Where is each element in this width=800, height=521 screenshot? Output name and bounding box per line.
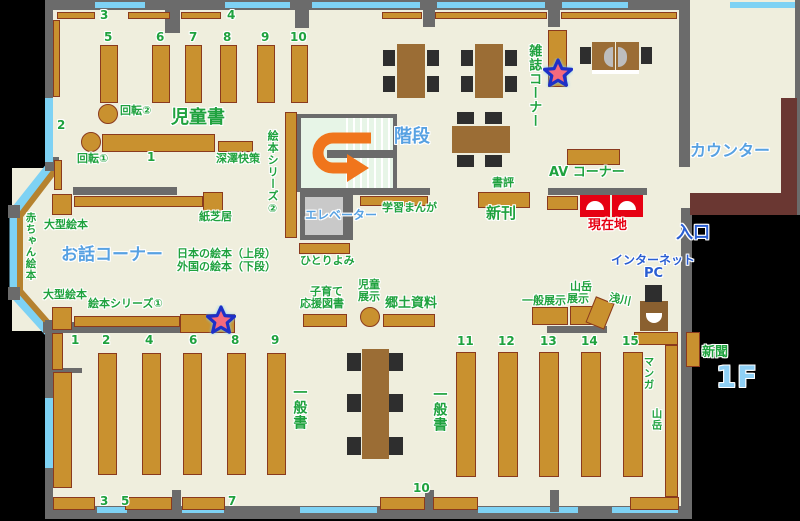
chair — [485, 155, 502, 167]
shelf-9-general — [267, 353, 286, 475]
chair — [389, 353, 403, 371]
pc-monitor — [645, 285, 662, 302]
chair — [457, 155, 474, 167]
chair — [383, 76, 395, 92]
pillar — [548, 0, 560, 27]
wall-shelf — [435, 12, 547, 19]
newspaper-rack — [686, 332, 700, 367]
shelf-number: 6 — [156, 31, 164, 44]
chair — [485, 112, 502, 124]
shelf-number: 10 — [290, 31, 307, 44]
pillar — [295, 0, 309, 28]
chair — [505, 50, 517, 66]
shelf-10 — [291, 45, 308, 103]
shelf-6 — [152, 45, 170, 103]
general-display-label: 一般展示 — [522, 295, 566, 307]
shelf-1 — [102, 134, 215, 152]
shelf-number: 2 — [102, 334, 110, 347]
chair — [461, 76, 473, 92]
shelf-8-general — [227, 353, 246, 475]
shelf-number: 1 — [147, 151, 155, 164]
shelf-number: 4 — [227, 9, 235, 22]
manga-mountain-shelf — [665, 345, 678, 497]
shelf-number: 9 — [271, 334, 279, 347]
shelf-14 — [581, 352, 601, 477]
rotating-rack-2 — [98, 104, 118, 124]
floor-badge: 1F — [716, 362, 758, 394]
counter-desk — [690, 193, 797, 215]
interior-wall — [548, 188, 647, 195]
child-display-label: 展示 — [358, 291, 380, 303]
side-table — [641, 47, 652, 64]
shelf-9 — [257, 45, 275, 103]
interior-wall — [73, 187, 177, 195]
star-marker-icon — [543, 58, 573, 88]
shelf-15 — [623, 352, 643, 477]
shelf-3-top — [128, 12, 170, 19]
shelf-7-bottom — [182, 497, 225, 510]
top-window — [312, 2, 420, 8]
manga-shelf-top — [634, 332, 678, 345]
general-books-zone-label: 一般書 — [291, 385, 306, 447]
shelf-2 — [53, 20, 60, 97]
pillar — [423, 0, 435, 27]
shelf-4-top — [181, 12, 221, 19]
solo-reading-label: ひとりよみ — [300, 255, 355, 267]
general-display-shelf — [532, 307, 568, 325]
bottom-window — [478, 507, 578, 513]
shelf-number: 15 — [622, 335, 639, 348]
study-table — [362, 349, 389, 459]
shelf-5-bottom — [125, 497, 172, 510]
shelf-3-bottom — [53, 497, 95, 510]
fukazawa-shelf — [218, 141, 253, 152]
baby-picture-books-label: 赤ちゃん絵本 — [24, 212, 36, 304]
shelf-number: 7 — [189, 31, 197, 44]
kamishibai-shelf — [203, 192, 223, 212]
chair — [427, 50, 439, 66]
chair — [389, 394, 403, 412]
childcare-books-shelf — [303, 314, 347, 327]
large-picture-book-shelf — [52, 194, 72, 215]
mountain-display-label: 展示 — [567, 293, 589, 305]
shelf-number: 7 — [228, 495, 236, 508]
chair — [457, 112, 474, 124]
general-books-zone-label: 一般書 — [431, 387, 446, 449]
wall-shelf — [54, 160, 62, 190]
rotating-rack-1-label: 回転① — [77, 153, 108, 165]
childcare-books-label: 応援図書 — [300, 298, 344, 310]
side-table — [580, 47, 591, 64]
shelf-number: 13 — [540, 335, 557, 348]
shelf-6-general — [183, 353, 202, 475]
shelf-number: 5 — [104, 31, 112, 44]
shelf-2-general — [98, 353, 117, 475]
chair — [461, 50, 473, 66]
mountain-label: 山岳 — [650, 408, 662, 440]
chair — [383, 50, 395, 66]
shelf-5 — [100, 45, 118, 103]
top-window — [562, 2, 628, 8]
rotating-rack-2-label: 回転② — [120, 105, 151, 117]
picture-book-series-2-shelf — [285, 112, 297, 238]
shelf-12 — [498, 352, 518, 477]
elevator-label: エレベーター — [305, 209, 377, 222]
wall-shelf — [382, 12, 422, 19]
large-picture-books-label: 大型絵本 — [43, 289, 87, 301]
bottom-window — [300, 507, 377, 513]
book-review-label: 書評 — [492, 177, 514, 189]
reading-table — [397, 44, 425, 98]
shelf-number: 1 — [71, 334, 79, 347]
chair — [427, 76, 439, 92]
large-picture-book-shelf — [52, 307, 72, 330]
chair — [389, 437, 403, 455]
child-display-table — [360, 307, 380, 327]
kamishibai-label: 紙芝居 — [199, 211, 232, 223]
shelf-number: 3 — [100, 9, 108, 22]
internet-pc-label: PC — [644, 267, 663, 281]
shelf-11 — [456, 352, 476, 477]
study-manga-label: 学習まんが — [382, 202, 437, 214]
left-window-lower — [45, 398, 53, 468]
wall-shelf — [53, 372, 72, 488]
local-materials-label: 郷土資料 — [385, 297, 437, 311]
pillar — [550, 490, 559, 512]
shelf-number: 5 — [121, 495, 129, 508]
shelf-number: 8 — [231, 334, 239, 347]
shelf-3-top — [57, 12, 95, 19]
shelf-1-wall — [52, 333, 63, 370]
shelf-number: 4 — [145, 334, 153, 347]
stairs-label: 階段 — [394, 127, 430, 147]
stairs-direction-arrow-icon — [303, 126, 375, 184]
chair — [347, 353, 361, 371]
new-arrivals-label: 新刊 — [486, 205, 516, 222]
left-window-upper — [45, 98, 53, 162]
reading-table — [475, 44, 503, 98]
magazine-corner-zone-label: 雑誌コーナー — [526, 44, 540, 144]
shelf-number: 6 — [189, 334, 197, 347]
top-window — [437, 2, 545, 8]
chair — [347, 394, 361, 412]
shelf-10-bottom — [433, 497, 478, 510]
shelf-7 — [185, 45, 202, 103]
solo-reading-shelf — [299, 243, 350, 254]
manga-label: マンガ — [642, 356, 654, 401]
current-location-label: 現在地 — [588, 219, 627, 233]
shelf-4-general — [142, 353, 161, 475]
shelf-number: 11 — [457, 335, 474, 348]
library-floor-map: 3 4 5 6 7 8 9 10 2 1 回転② 回転① 児童書 深澤快策 絵本… — [0, 0, 800, 521]
shelf-number: 9 — [261, 31, 269, 44]
entrance-label: 入口 — [676, 224, 710, 243]
shelf-number: 8 — [223, 31, 231, 44]
wall-shelf — [561, 12, 677, 19]
shelf-8 — [220, 45, 237, 103]
av-corner-shelf — [567, 149, 620, 165]
shelf-number: 14 — [581, 335, 598, 348]
picture-book-series-2-label: 絵本シリーズ② — [266, 130, 278, 235]
large-picture-books-label: 大型絵本 — [44, 219, 88, 231]
newspaper-label: 新聞 — [702, 346, 728, 360]
local-materials-shelf — [383, 314, 435, 327]
fukazawa-label: 深澤快策 — [216, 153, 260, 165]
shelf-number: 12 — [498, 335, 515, 348]
picture-book-series-1-shelf — [74, 316, 180, 327]
kids-books-zone-label: 児童書 — [171, 108, 225, 128]
picture-book-wall-shelf — [74, 196, 203, 207]
shelf-number: 10 — [413, 482, 430, 495]
sofa-base — [592, 70, 639, 74]
shelf-number: 2 — [57, 119, 65, 132]
picture-book-series-1-label: 絵本シリーズ① — [88, 298, 163, 310]
shelf-10-bottom — [380, 497, 425, 510]
star-marker-icon — [206, 305, 236, 335]
right-wall-upper — [679, 0, 690, 167]
counter-label: カウンター — [690, 142, 770, 160]
shelf-13 — [539, 352, 559, 477]
reading-table — [452, 126, 510, 153]
top-window — [730, 2, 796, 8]
story-corner-zone-label: お話コーナー — [61, 246, 163, 265]
chair — [347, 437, 361, 455]
pillar — [172, 490, 181, 512]
wall-shelf — [630, 497, 679, 510]
shelf-number: 3 — [100, 495, 108, 508]
av-side-shelf — [547, 196, 578, 210]
japanese-picture-books-label: 日本の絵本（上段） — [177, 248, 276, 260]
foreign-picture-books-label: 外国の絵本（下段） — [177, 261, 276, 273]
rotating-rack-1 — [81, 132, 101, 152]
sofa-cushion — [604, 47, 613, 67]
chair — [505, 76, 517, 92]
av-corner-zone-label: AV コーナー — [549, 166, 625, 180]
